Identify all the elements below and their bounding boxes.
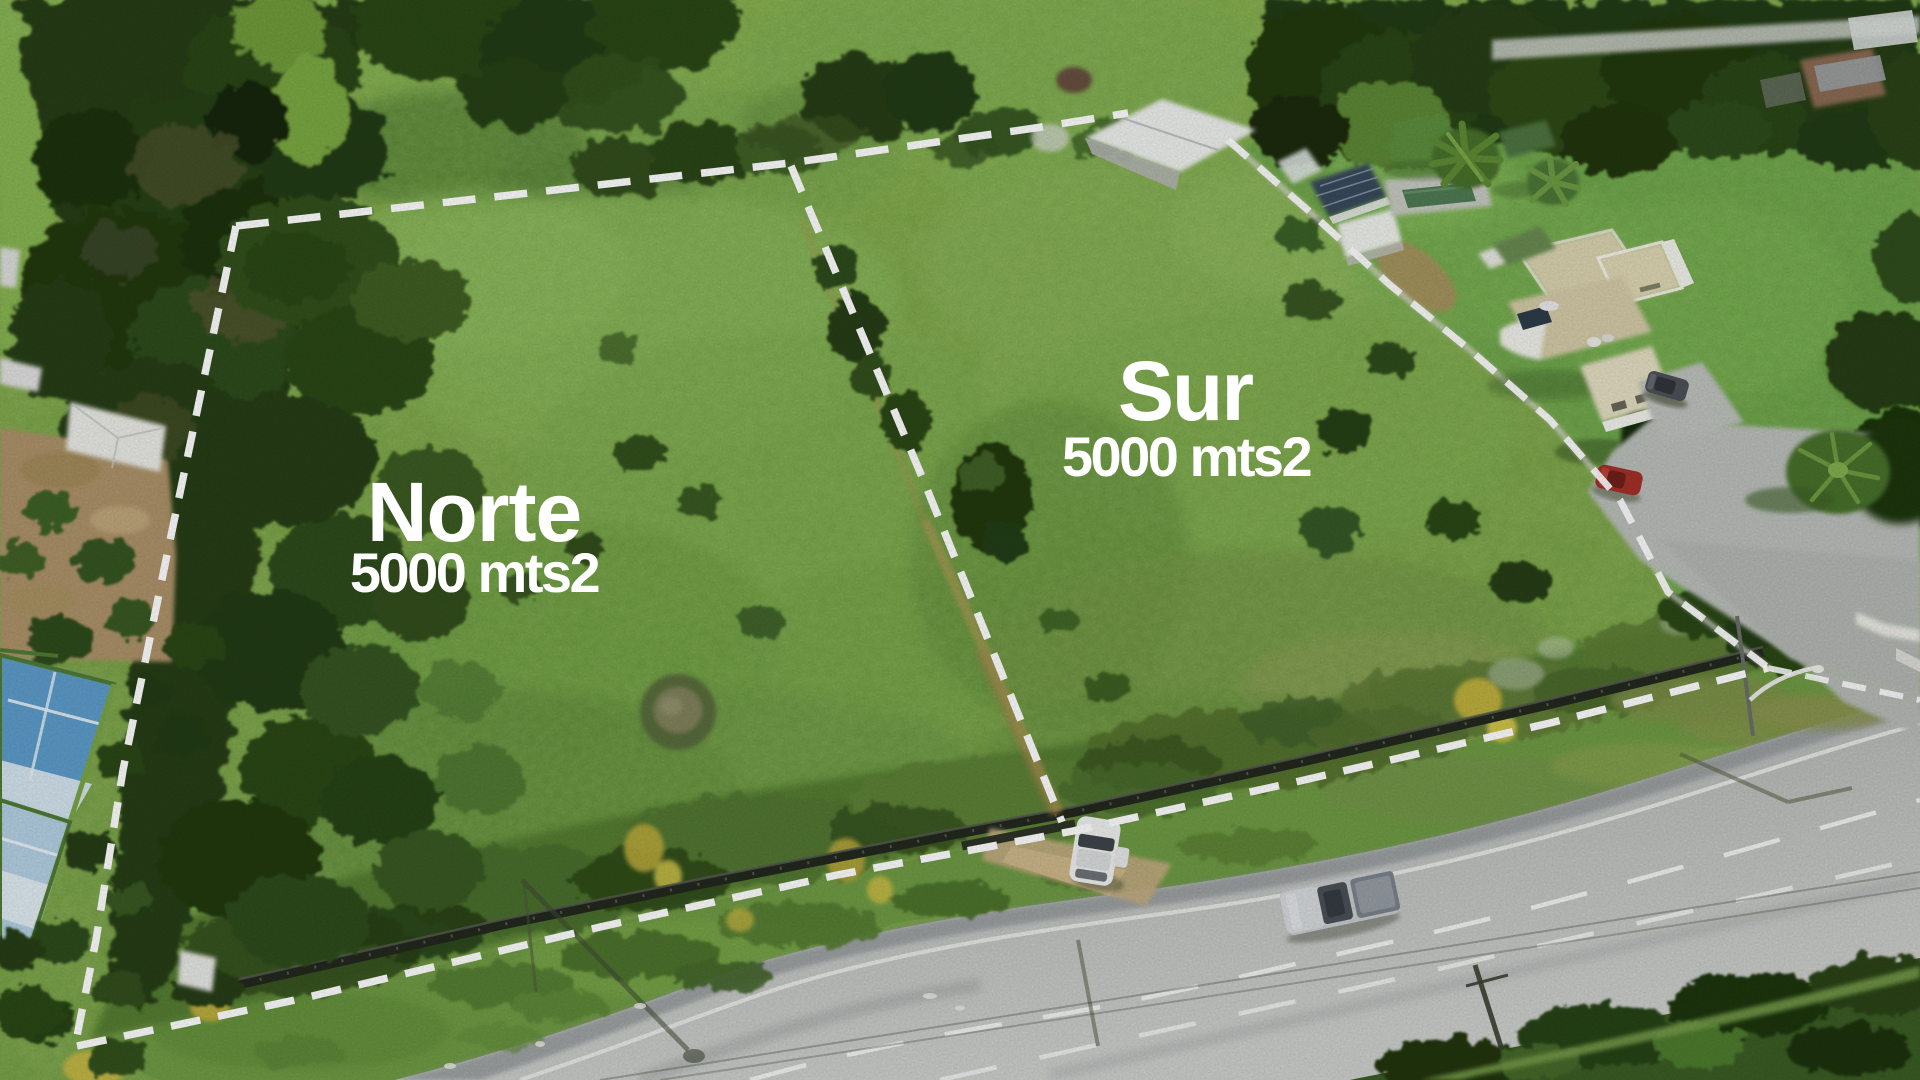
svg-text:5000 mts2: 5000 mts2: [350, 541, 599, 604]
svg-text:Sur: Sur: [1118, 344, 1253, 438]
svg-text:5000 mts2: 5000 mts2: [1062, 425, 1311, 488]
